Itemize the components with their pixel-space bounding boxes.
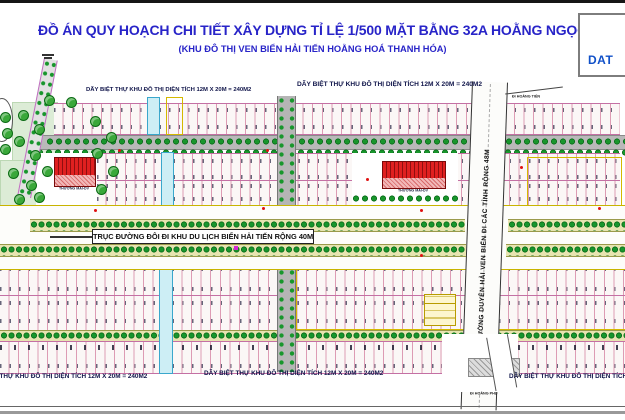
channel-strip bbox=[147, 97, 160, 135]
villa-row-label-bottom-center: DÃY BIỆT THỰ KHU ĐÔ THỊ DIỆN TÍCH 12M X … bbox=[204, 370, 383, 377]
tree-icon bbox=[66, 97, 77, 108]
utility-marker bbox=[234, 246, 238, 250]
area-table bbox=[424, 294, 456, 326]
tree-icon bbox=[34, 192, 45, 203]
main-road-label: TRỤC ĐƯỜNG ĐÔI ĐI KHU DU LỊCH BIỂN HẢI T… bbox=[92, 229, 314, 244]
north-exit-line bbox=[505, 86, 563, 94]
utility-marker bbox=[118, 149, 121, 152]
tree-icon bbox=[8, 168, 19, 179]
boulevard-tree-row bbox=[506, 244, 625, 257]
utility-marker bbox=[420, 209, 423, 212]
minor-road-vertical bbox=[277, 96, 296, 205]
utility-marker bbox=[262, 207, 265, 210]
highlight-plot-group bbox=[296, 262, 625, 330]
tree-icon bbox=[34, 124, 45, 135]
logo-text: DAT bbox=[588, 53, 613, 67]
tree-icon bbox=[14, 194, 25, 205]
villa-row-label-bottom-left: DÃY BIỆT THỰ KHU ĐÔ THỊ DIỆN TÍCH 12M X … bbox=[0, 373, 147, 380]
villa-row-label-top-left: DÃY BIỆT THỰ KHU ĐÔ THỊ DIỆN TÍCH 12M X … bbox=[86, 87, 251, 93]
utility-marker bbox=[94, 209, 97, 212]
utility-marker bbox=[520, 166, 523, 169]
minor-road-vertical bbox=[277, 268, 296, 372]
tree-icon bbox=[96, 184, 107, 195]
tree-icon bbox=[14, 136, 25, 147]
commercial-building bbox=[54, 157, 96, 187]
tree-icon bbox=[2, 128, 13, 139]
boulevard-tree-row bbox=[0, 244, 466, 257]
commercial-label: THƯƠNG MẠI-DV bbox=[394, 189, 432, 193]
highlight-plot-group bbox=[527, 157, 622, 207]
tree-icon bbox=[0, 144, 11, 155]
channel-strip bbox=[161, 152, 174, 207]
street-tree-row bbox=[352, 194, 458, 203]
tree-icon bbox=[42, 166, 53, 177]
boulevard-tree-row bbox=[508, 219, 625, 232]
logo-box bbox=[578, 13, 625, 77]
sheet-bottom-rule bbox=[0, 411, 625, 414]
highlight-plot bbox=[166, 97, 183, 135]
page-title: ĐỒ ÁN QUY HOẠCH CHI TIẾT XÂY DỰNG TỈ LỆ … bbox=[0, 22, 625, 38]
tree-icon bbox=[30, 150, 41, 161]
villa-row-label-top-right: DÃY BIỆT THỰ KHU ĐÔ THỊ DIỆN TÍCH 12M X … bbox=[297, 81, 482, 88]
plot-row-north-1 bbox=[54, 103, 620, 135]
street-tree-row bbox=[46, 137, 625, 147]
small-annotation bbox=[42, 54, 54, 56]
sheet-bottom-rule bbox=[0, 406, 625, 407]
channel-strip bbox=[159, 258, 173, 374]
tree-icon bbox=[44, 95, 55, 106]
commercial-building bbox=[382, 161, 446, 189]
utility-marker bbox=[598, 207, 601, 210]
tree-icon bbox=[90, 116, 101, 127]
north-exit-label: Đi HOẰNG TIẾN bbox=[512, 95, 540, 99]
tree-icon bbox=[26, 180, 37, 191]
commercial-label: THƯƠNG MẠI-DV bbox=[55, 187, 93, 191]
sheet-top-rule bbox=[0, 0, 625, 3]
tree-icon bbox=[108, 166, 119, 177]
south-exit-label: Đi HOẰNG PHỤ bbox=[470, 392, 497, 396]
utility-marker bbox=[366, 178, 369, 181]
utility-marker bbox=[420, 254, 423, 257]
utility-marker bbox=[266, 149, 269, 152]
page-subtitle: (KHU ĐÔ THỊ VEN BIỂN HẢI TIẾN HOẰNG HOÁ … bbox=[0, 44, 625, 54]
tree-icon bbox=[18, 110, 29, 121]
villa-row-label-bottom-right: DÃY BIỆT THỰ KHU ĐÔ THỊ DIỆN TÍCH 12M X … bbox=[509, 373, 625, 380]
tree-icon bbox=[92, 148, 103, 159]
tree-icon bbox=[106, 132, 117, 143]
small-annotation bbox=[44, 57, 52, 59]
plan-sheet: ĐƯỜNG DUYÊN HẢI VEN BIỂN ĐI CÁC TỈNH RỘN… bbox=[0, 0, 625, 420]
tree-icon bbox=[0, 112, 11, 123]
